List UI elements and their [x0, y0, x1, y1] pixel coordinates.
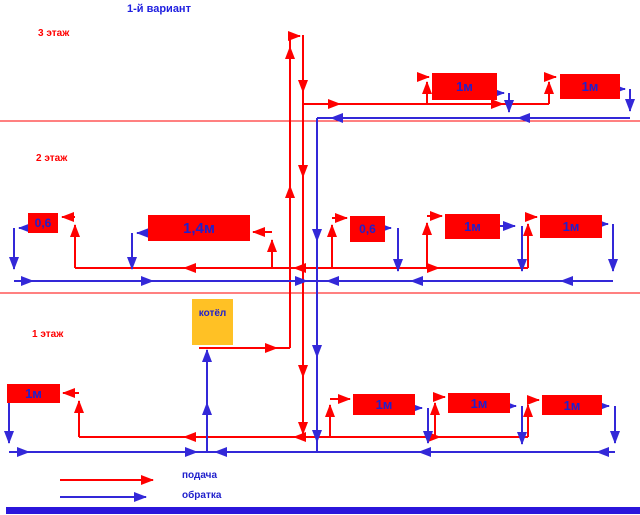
floor-3-label: 3 этаж: [38, 28, 69, 39]
floor-1-label: 1 этаж: [32, 329, 63, 340]
piping-diagram: [0, 0, 640, 515]
boiler-box: котёл: [192, 299, 233, 345]
radiator-f3-2: 1м: [560, 74, 620, 99]
radiator-f2-right-1: 0,6: [350, 216, 385, 242]
radiator-f2-right-2: 1м: [445, 214, 500, 239]
legend-supply-label: подача: [182, 470, 217, 481]
radiator-f1-right-3: 1м: [542, 395, 602, 415]
floor-2-label: 2 этаж: [36, 153, 67, 164]
radiator-f2-right-3: 1м: [540, 215, 602, 238]
radiator-f1-right-2: 1м: [448, 393, 510, 413]
radiator-f3-1: 1м: [432, 73, 497, 100]
bottom-bar: [6, 507, 640, 514]
radiator-f2-left-2: 1,4м: [148, 215, 250, 241]
radiator-f1-right-1: 1м: [353, 394, 415, 415]
radiator-f2-left-1: 0,6: [28, 213, 58, 233]
radiator-f1-left-1: 1м: [7, 384, 60, 403]
page-title: 1-й вариант: [127, 3, 191, 15]
legend-return-label: обратка: [182, 490, 221, 501]
heating-scheme-canvas: 1-й вариант 3 этаж 2 этаж 1 этаж 1м 1м 0…: [0, 0, 640, 515]
supply-pipes: [60, 35, 556, 480]
